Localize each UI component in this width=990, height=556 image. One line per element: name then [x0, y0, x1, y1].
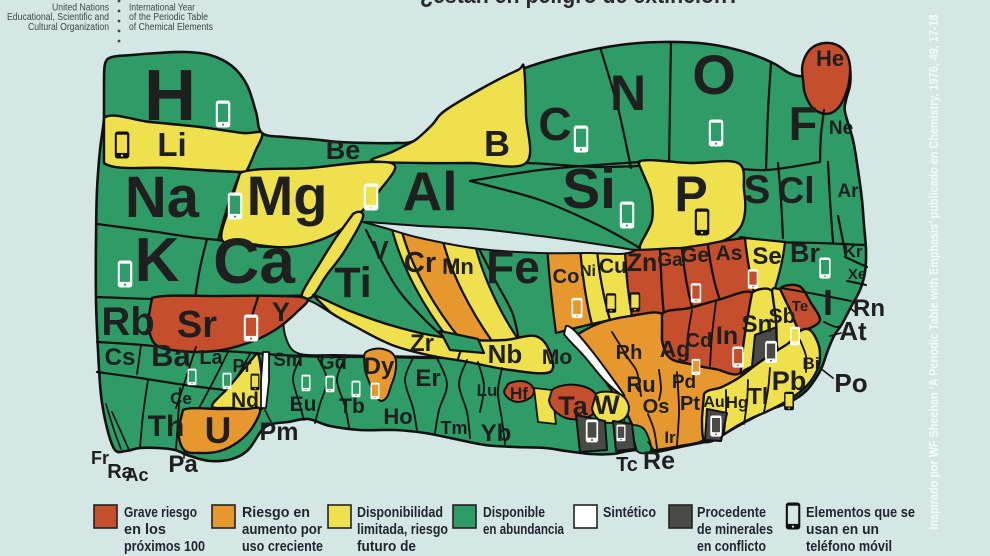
svg-text:teléfono móvil: teléfono móvil — [806, 538, 892, 555]
svg-text:Tc: Tc — [616, 454, 638, 476]
svg-text:Cu: Cu — [599, 255, 627, 278]
svg-text:Pr: Pr — [232, 356, 251, 376]
svg-text:Disponibilidad: Disponibilidad — [357, 504, 443, 521]
svg-text:Gd: Gd — [319, 352, 347, 374]
svg-text:Re: Re — [643, 447, 675, 475]
svg-text:Mn: Mn — [442, 254, 474, 279]
svg-text:Tm: Tm — [441, 418, 468, 438]
svg-text:K: K — [135, 226, 180, 295]
svg-text:Rb: Rb — [101, 300, 154, 344]
svg-text:usan en un: usan en un — [806, 521, 879, 538]
svg-text:V: V — [371, 235, 389, 265]
svg-text:en abundancia: en abundancia — [483, 521, 565, 538]
svg-text:O: O — [692, 43, 736, 106]
svg-text:Eu: Eu — [290, 393, 317, 416]
svg-text:uso creciente: uso creciente — [242, 538, 323, 555]
svg-text:Mo: Mo — [542, 346, 572, 369]
svg-text:Cl: Cl — [778, 170, 815, 211]
svg-text:Tb: Tb — [339, 395, 365, 418]
svg-text:Elementos que se: Elementos que se — [806, 504, 915, 521]
svg-text:Nb: Nb — [488, 339, 523, 369]
svg-text:Se: Se — [752, 243, 781, 270]
svg-text:Procedente: Procedente — [697, 504, 766, 521]
svg-text:Sm: Sm — [273, 350, 303, 371]
svg-text:Ac: Ac — [125, 465, 148, 485]
svg-text:Pt: Pt — [680, 393, 700, 415]
svg-text:of Chemical Elements: of Chemical Elements — [129, 22, 213, 33]
svg-text:Y: Y — [272, 297, 290, 327]
svg-text:Sintético: Sintético — [603, 504, 656, 521]
svg-text:aumento por: aumento por — [242, 521, 322, 538]
svg-text:F: F — [789, 97, 818, 150]
svg-text:W: W — [594, 390, 620, 420]
svg-text:Au: Au — [703, 394, 724, 411]
svg-text:Cultural Organization: Cultural Organization — [28, 22, 109, 33]
svg-text:H: H — [144, 56, 196, 136]
svg-text:Ni: Ni — [580, 263, 596, 280]
svg-text:C: C — [538, 98, 571, 150]
svg-text:Rn: Rn — [853, 295, 885, 322]
svg-text:Si: Si — [562, 157, 616, 221]
svg-text:Ru: Ru — [626, 372, 655, 397]
svg-text:Hf: Hf — [510, 384, 528, 403]
svg-text:¿están en peligro de extinción: ¿están en peligro de extinción? — [420, 0, 740, 9]
svg-text:La: La — [199, 347, 223, 369]
svg-text:Cd: Cd — [686, 330, 713, 352]
svg-text:Riesgo en: Riesgo en — [242, 504, 310, 521]
svg-text:en conflicto: en conflicto — [697, 538, 766, 555]
svg-text:Mg: Mg — [247, 164, 328, 227]
svg-text:In: In — [716, 322, 738, 350]
svg-text:Cr: Cr — [404, 247, 436, 279]
svg-text:Yb: Yb — [481, 420, 512, 447]
svg-text:Ti: Ti — [334, 259, 371, 307]
svg-text:Be: Be — [326, 135, 361, 165]
svg-text:Co: Co — [553, 266, 580, 288]
svg-text:Pm: Pm — [260, 418, 299, 446]
svg-text:Ar: Ar — [837, 181, 859, 202]
svg-text:Disponible: Disponible — [483, 504, 545, 521]
svg-text:Na: Na — [125, 165, 200, 230]
svg-text:Ne: Ne — [829, 118, 853, 139]
svg-text:Ho: Ho — [383, 404, 412, 429]
svg-text:As: As — [716, 242, 743, 265]
svg-text:Ba: Ba — [151, 338, 191, 373]
svg-text:Kr: Kr — [844, 242, 863, 261]
svg-text:futuro de: futuro de — [357, 538, 416, 555]
svg-text:Fe: Fe — [486, 241, 540, 293]
svg-text:S: S — [744, 168, 771, 212]
svg-text:de minerales: de minerales — [697, 521, 773, 538]
svg-text:Ca: Ca — [213, 225, 295, 297]
svg-text:B: B — [484, 123, 510, 164]
svg-text:Ir: Ir — [664, 428, 676, 447]
svg-text:Grave riesgo: Grave riesgo — [124, 504, 197, 521]
svg-text:Lu: Lu — [477, 381, 498, 400]
svg-text:Pd: Pd — [672, 372, 696, 393]
svg-text:Br: Br — [790, 238, 820, 268]
svg-text:Po: Po — [834, 368, 867, 398]
svg-text:Ce: Ce — [170, 389, 192, 408]
svg-text:próximos 100: próximos 100 — [124, 538, 205, 555]
svg-text:Zn: Zn — [627, 249, 658, 277]
svg-text:U: U — [205, 410, 232, 451]
svg-text:Pb: Pb — [772, 366, 807, 396]
svg-text:limitada, riesgo: limitada, riesgo — [357, 521, 448, 538]
svg-text:Zr: Zr — [410, 330, 434, 357]
svg-text:Hg: Hg — [726, 393, 749, 412]
svg-text:I: I — [823, 282, 833, 323]
svg-text:Ta: Ta — [558, 391, 588, 421]
svg-text:Ga: Ga — [657, 250, 683, 271]
svg-text:Os: Os — [643, 396, 670, 418]
svg-text:He: He — [816, 46, 844, 71]
svg-text:Dy: Dy — [364, 353, 395, 380]
svg-text:Er: Er — [415, 365, 440, 392]
svg-text:Th: Th — [148, 410, 185, 443]
svg-text:Li: Li — [157, 126, 186, 163]
svg-text:Al: Al — [403, 160, 458, 222]
svg-text:Pa: Pa — [168, 451, 198, 478]
svg-text:Ge: Ge — [681, 244, 709, 267]
svg-text:Xe: Xe — [848, 266, 866, 283]
svg-text:Inspirado por WF Sheehan ‘A Pe: Inspirado por WF Sheehan ‘A Periodic Tab… — [927, 14, 941, 529]
svg-text:Rh: Rh — [616, 342, 643, 364]
svg-text:Tl: Tl — [748, 383, 768, 409]
svg-text:N: N — [610, 65, 646, 121]
svg-text:Te: Te — [792, 298, 808, 315]
svg-text:Bi: Bi — [803, 354, 820, 373]
svg-text:Nd: Nd — [231, 389, 259, 412]
svg-text:en los: en los — [124, 521, 166, 538]
svg-text:Cs: Cs — [105, 344, 136, 371]
